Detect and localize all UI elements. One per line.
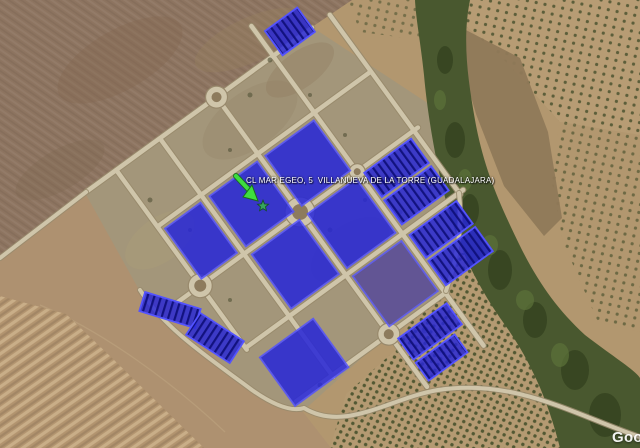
satellite-imagery[interactable] <box>0 0 640 448</box>
satellite-map-view[interactable]: CL MAR EGEO, 5 VILLANUEVA DE LA TORRE (G… <box>0 0 640 448</box>
address-label: CL MAR EGEO, 5 VILLANUEVA DE LA TORRE (G… <box>246 176 494 186</box>
google-watermark: Goo <box>612 429 640 446</box>
